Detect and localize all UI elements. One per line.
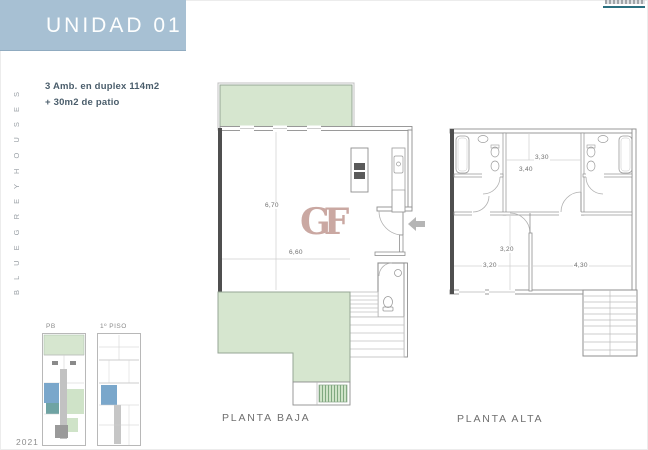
dimension-label: 3,30 bbox=[534, 154, 550, 161]
dimension-label: 3,20 bbox=[482, 262, 498, 269]
thumbnail-first-floor-drawing bbox=[97, 333, 141, 446]
dimension-label: 6,60 bbox=[288, 249, 304, 256]
year-label: 2021 bbox=[16, 437, 39, 447]
thumbnail-pb-drawing bbox=[42, 333, 86, 446]
unit-title-banner: UNIDAD 01 bbox=[0, 0, 186, 51]
dimension-label: 3,20 bbox=[499, 246, 515, 253]
thumb-label-first-floor: 1º PISO bbox=[100, 323, 127, 330]
unit-summary: 3 Amb. en duplex 114m2 + 30m2 de patio bbox=[45, 81, 159, 113]
top-right-brand-mark bbox=[603, 0, 645, 10]
summary-line-2: + 30m2 de patio bbox=[45, 97, 159, 108]
entrance-arrow-icon bbox=[408, 217, 425, 231]
brand-underline bbox=[603, 6, 645, 8]
brand-text-smudge bbox=[605, 0, 645, 4]
caption-planta-alta: PLANTA ALTA bbox=[457, 413, 543, 425]
dimension-label: 6,70 bbox=[264, 202, 280, 209]
caption-planta-baja: PLANTA BAJA bbox=[222, 412, 310, 424]
dimension-label: 4,30 bbox=[573, 262, 589, 269]
gf-watermark: GF bbox=[300, 201, 342, 243]
plan-sheet-page: UNIDAD 01 3 Amb. en duplex 114m2 + 30m2 … bbox=[0, 0, 648, 450]
thumb-label-pb: PB bbox=[46, 323, 56, 330]
dimension-label: 3,40 bbox=[518, 166, 534, 173]
summary-line-1: 3 Amb. en duplex 114m2 bbox=[45, 81, 159, 92]
unit-title: UNIDAD 01 bbox=[46, 14, 183, 37]
project-name-vertical: B L U E G R E Y H O U S E S bbox=[12, 163, 21, 295]
